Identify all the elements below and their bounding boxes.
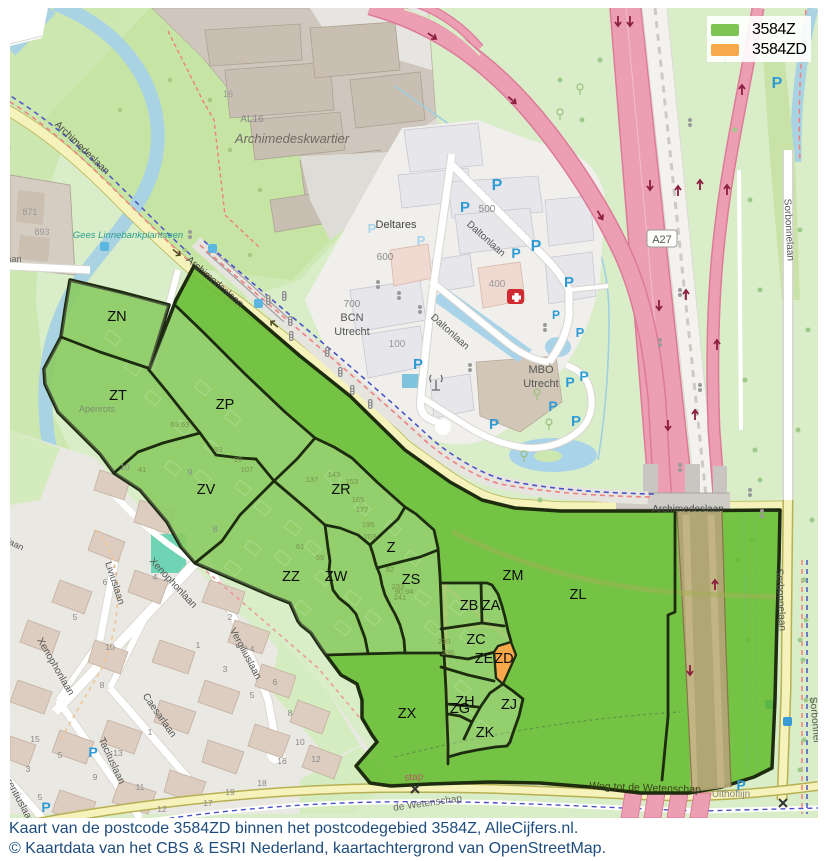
svg-text:P: P <box>413 356 423 373</box>
svg-text:Archimedeslaan: Archimedeslaan <box>652 504 724 515</box>
svg-text:195: 195 <box>362 520 375 529</box>
svg-text:10: 10 <box>105 642 115 652</box>
svg-text:8: 8 <box>288 708 293 718</box>
svg-text:A27: A27 <box>652 234 672 246</box>
svg-text:P: P <box>548 398 557 414</box>
svg-text:AL16: AL16 <box>240 114 264 125</box>
svg-text:1: 1 <box>196 640 201 650</box>
svg-text:ZG: ZG <box>450 701 470 717</box>
svg-text:5: 5 <box>73 612 78 622</box>
svg-text:P: P <box>564 274 574 291</box>
svg-text:2: 2 <box>228 612 233 622</box>
svg-text:ZN: ZN <box>107 309 126 325</box>
svg-text:6: 6 <box>103 577 108 587</box>
svg-text:4: 4 <box>153 572 158 582</box>
svg-text:5: 5 <box>58 750 63 760</box>
svg-text:BCN: BCN <box>340 312 363 324</box>
svg-text:Utrecht: Utrecht <box>523 378 558 390</box>
svg-text:ZB: ZB <box>460 598 479 614</box>
svg-text:ZC: ZC <box>466 632 485 648</box>
svg-text:ZD: ZD <box>494 651 513 667</box>
svg-text:P: P <box>552 308 560 322</box>
svg-text:9: 9 <box>93 772 98 782</box>
svg-text:ZW: ZW <box>325 569 348 585</box>
svg-text:ZJ: ZJ <box>501 697 517 713</box>
svg-text:stap: stap <box>404 771 424 783</box>
svg-text:P: P <box>41 799 50 815</box>
svg-text:P: P <box>571 413 581 430</box>
svg-text:203: 203 <box>364 532 377 541</box>
svg-text:ZP: ZP <box>216 397 235 413</box>
svg-text:P: P <box>565 374 574 390</box>
svg-text:P: P <box>772 75 783 92</box>
svg-text:83: 83 <box>214 445 222 454</box>
svg-text:893: 893 <box>34 227 49 237</box>
svg-text:P: P <box>579 368 588 384</box>
svg-text:Archimedeskwartier: Archimedeskwartier <box>234 131 350 146</box>
svg-text:61: 61 <box>296 542 304 551</box>
svg-text:ZX: ZX <box>398 706 417 722</box>
svg-text:8: 8 <box>100 680 105 690</box>
svg-text:5: 5 <box>250 690 255 700</box>
svg-text:12: 12 <box>311 754 321 764</box>
svg-text:41: 41 <box>138 465 146 474</box>
svg-text:ZT: ZT <box>109 388 127 404</box>
svg-text:165: 165 <box>352 495 365 504</box>
svg-text:18: 18 <box>257 778 267 788</box>
svg-text:ZM: ZM <box>503 568 524 584</box>
svg-text:Apenrots: Apenrots <box>79 404 116 414</box>
svg-text:400: 400 <box>489 279 506 290</box>
svg-text:100: 100 <box>389 339 406 350</box>
svg-text:10: 10 <box>295 737 305 747</box>
svg-text:59: 59 <box>316 553 324 562</box>
svg-text:P: P <box>88 744 97 760</box>
svg-text:10: 10 <box>120 462 130 472</box>
svg-text:13: 13 <box>113 748 123 758</box>
svg-text:ZA: ZA <box>482 598 501 614</box>
svg-text:11: 11 <box>136 782 145 792</box>
svg-text:90 94: 90 94 <box>395 587 414 596</box>
svg-text:ZE: ZE <box>475 651 494 667</box>
svg-text:MBO: MBO <box>528 364 554 376</box>
svg-text:3: 3 <box>223 664 228 674</box>
svg-text:16: 16 <box>277 756 287 766</box>
svg-text:P: P <box>460 199 470 216</box>
svg-text:Gees Linnebankplantsoen: Gees Linnebankplantsoen <box>73 230 183 241</box>
svg-text:19: 19 <box>225 787 235 797</box>
svg-text:15: 15 <box>30 734 40 744</box>
svg-text:177: 177 <box>356 505 369 514</box>
svg-text:137: 137 <box>306 475 319 484</box>
svg-text:63 69: 63 69 <box>171 420 190 429</box>
svg-text:P: P <box>489 416 499 433</box>
svg-text:12: 12 <box>157 804 167 814</box>
svg-text:ZZ: ZZ <box>282 569 300 585</box>
svg-text:143: 143 <box>328 470 341 479</box>
svg-text:P: P <box>576 325 585 340</box>
svg-text:5: 5 <box>38 792 43 802</box>
svg-text:P: P <box>492 177 503 194</box>
svg-text:9: 9 <box>188 467 193 477</box>
svg-text:4: 4 <box>250 644 255 654</box>
svg-text:3: 3 <box>26 764 31 774</box>
svg-text:ZK: ZK <box>476 725 495 741</box>
svg-text:ZV: ZV <box>197 482 216 498</box>
svg-text:P: P <box>736 777 745 793</box>
svg-text:236: 236 <box>442 648 455 657</box>
svg-text:Deltares: Deltares <box>376 219 417 231</box>
svg-text:aan: aan <box>6 254 21 264</box>
svg-text:8: 8 <box>213 524 218 534</box>
svg-text:1: 1 <box>148 727 153 737</box>
svg-text:6: 6 <box>273 677 278 687</box>
svg-text:00: 00 <box>1 142 11 152</box>
svg-text:107: 107 <box>241 465 254 474</box>
svg-text:17: 17 <box>203 798 213 808</box>
svg-text:Z: Z <box>387 540 396 556</box>
svg-text:P: P <box>531 238 542 255</box>
svg-text:500: 500 <box>479 204 496 215</box>
svg-text:P: P <box>368 221 377 236</box>
svg-text:153: 153 <box>346 477 359 486</box>
svg-text:16: 16 <box>223 89 233 99</box>
svg-text:P: P <box>417 233 426 248</box>
svg-text:700: 700 <box>344 299 361 310</box>
svg-text:ZS: ZS <box>402 572 421 588</box>
svg-text:99: 99 <box>234 455 242 464</box>
svg-text:230: 230 <box>438 637 451 646</box>
svg-text:82: 82 <box>386 565 394 574</box>
svg-text:ZL: ZL <box>570 587 587 603</box>
svg-text:Utrecht: Utrecht <box>334 326 369 338</box>
svg-text:871: 871 <box>22 207 37 217</box>
svg-text:P: P <box>511 245 520 261</box>
svg-text:600: 600 <box>377 252 394 263</box>
